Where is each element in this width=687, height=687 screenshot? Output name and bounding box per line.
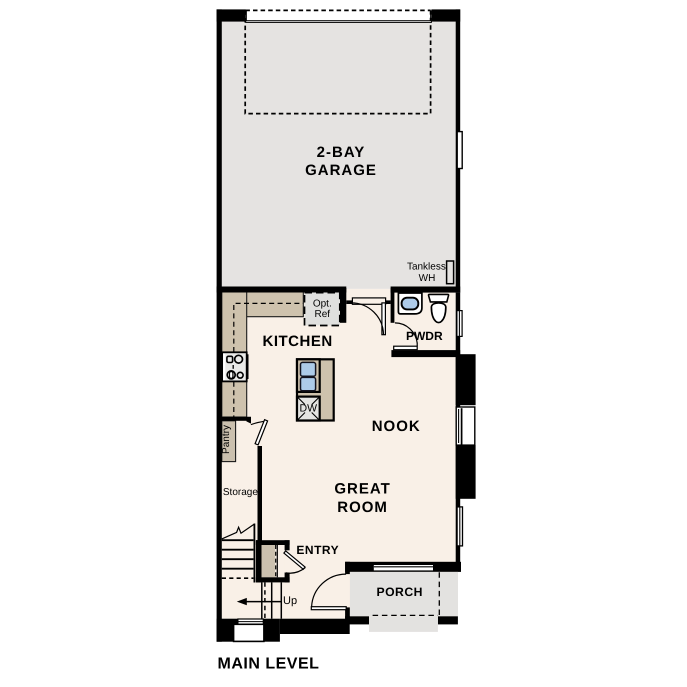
svg-text:ROOM: ROOM	[337, 499, 388, 516]
svg-text:2-BAY: 2-BAY	[317, 144, 366, 161]
svg-text:Tankless: Tankless	[407, 262, 446, 273]
svg-text:Opt.: Opt.	[313, 299, 332, 310]
svg-text:GREAT: GREAT	[334, 481, 390, 498]
svg-text:MAIN LEVEL: MAIN LEVEL	[218, 655, 320, 672]
svg-text:Up: Up	[283, 595, 297, 607]
svg-text:Ref: Ref	[315, 309, 331, 320]
svg-text:GARAGE: GARAGE	[305, 162, 377, 179]
svg-text:Pantry: Pantry	[221, 425, 232, 454]
svg-text:DW: DW	[300, 403, 318, 415]
svg-text:KITCHEN: KITCHEN	[263, 333, 333, 350]
svg-text:WH: WH	[419, 273, 436, 284]
svg-text:Storage: Storage	[223, 487, 258, 498]
svg-text:PWDR: PWDR	[406, 329, 443, 343]
svg-text:PORCH: PORCH	[376, 585, 423, 599]
svg-text:NOOK: NOOK	[372, 418, 421, 435]
svg-text:ENTRY: ENTRY	[296, 543, 339, 557]
